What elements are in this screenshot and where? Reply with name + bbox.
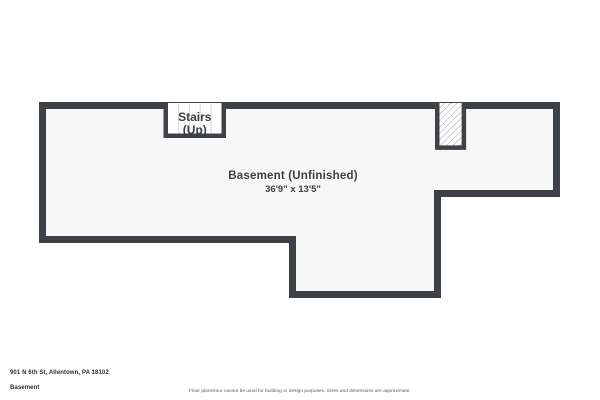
floorplan-outline	[43, 106, 557, 295]
hatched-shaft-hatching	[438, 103, 465, 148]
property-address: 901 N 6th St, Allentown, PA 18102	[10, 370, 109, 376]
room-label: Basement (Unfinished)	[228, 170, 357, 182]
stairs-label-line1: Stairs	[178, 110, 212, 124]
room-dimensions: 36'9" x 13'5"	[265, 184, 321, 195]
floorplan-drawing: Stairs (Up) Basement (Unfinished) 36'9" …	[0, 0, 600, 400]
staircase: Stairs (Up)	[166, 102, 224, 137]
disclaimer-text: Floor plans/tour cannot be used for buil…	[0, 388, 600, 393]
floorplan-page: Stairs (Up) Basement (Unfinished) 36'9" …	[0, 0, 600, 400]
hatched-shaft	[437, 102, 464, 148]
stairs-label-line2: (Up)	[183, 123, 207, 137]
